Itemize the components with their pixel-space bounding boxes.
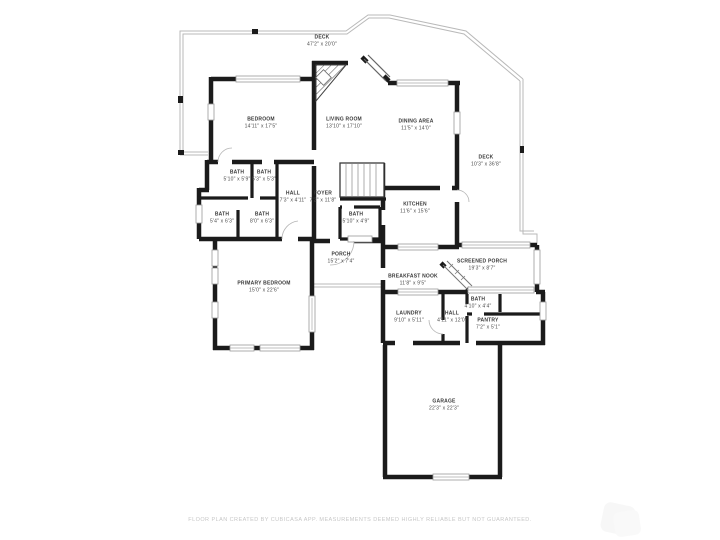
room-dims: 47'2" x 20'0": [307, 41, 337, 48]
room-name: SCREENED PORCH: [457, 259, 507, 266]
room-label-bedroom: BEDROOM 14'11" x 17'5": [245, 117, 278, 130]
room-label-bath-5: BATH 5'10" x 4'9": [342, 212, 369, 225]
window-midlines: [230, 79, 534, 477]
windows: [196, 76, 546, 480]
room-label-porch: PORCH 15'2" x 7'4": [327, 252, 354, 265]
room-label-pantry: PANTRY 7'2" x 5'1": [476, 318, 500, 331]
room-label-kitchen: KITCHEN 11'6" x 15'6": [400, 202, 430, 215]
room-label-garage: GARAGE 22'3" x 22'3": [429, 399, 459, 412]
room-label-foyer: FOYER 7'2" x 11'8": [310, 191, 337, 204]
room-dims: 15'0" x 22'6": [237, 287, 290, 294]
room-name: PORCH: [327, 252, 354, 259]
room-dims: 14'11" x 17'5": [245, 123, 278, 130]
room-label-bath-2: BATH 5'3" x 5'3": [252, 170, 276, 183]
room-dims: 8'0" x 6'3": [250, 218, 274, 225]
room-label-breakfast-nook: BREAKFAST NOOK 11'8" x 9'5": [388, 274, 438, 287]
footer-disclaimer: FLOOR PLAN CREATED BY CUBICASA APP. MEAS…: [0, 517, 720, 523]
room-name: BEDROOM: [245, 117, 278, 124]
room-dims: 10'3" x 36'8": [471, 161, 501, 168]
room-label-laundry: LAUNDRY 9'10" x 5'11": [394, 311, 424, 324]
room-name: BREAKFAST NOOK: [388, 274, 438, 281]
room-dims: 5'10" x 4'9": [342, 218, 369, 225]
room-label-deck-top: DECK 47'2" x 20'0": [307, 35, 337, 48]
room-label-hall-upper: HALL 7'3" x 4'11": [280, 191, 307, 204]
room-dims: 7'2" x 5'1": [476, 324, 500, 331]
room-dims: 5'10" x 5'9": [223, 176, 250, 183]
room-dims: 11'6" x 15'6": [400, 208, 430, 215]
room-dims: 7'3" x 4'11": [280, 197, 307, 204]
floor-plan-canvas: DECK 47'2" x 20'0" BEDROOM 14'11" x 17'5…: [0, 0, 720, 540]
room-label-hall-lower: HALL 4'11" x 12'0": [437, 311, 467, 324]
room-dims: 22'3" x 22'3": [429, 405, 459, 412]
room-dims: 7'2" x 11'8": [310, 197, 337, 204]
room-dims: 15'2" x 7'4": [327, 258, 354, 265]
room-label-bath-3: BATH 5'4" x 6'3": [210, 212, 234, 225]
deck-stairs-hatch: [316, 65, 346, 101]
room-dims: 5'3" x 5'3": [252, 176, 276, 183]
room-dims: 5'4" x 6'3": [210, 218, 234, 225]
room-label-dining-area: DINING AREA 11'5" x 14'0": [398, 119, 433, 132]
room-dims: 11'5" x 14'0": [398, 125, 433, 132]
room-label-primary-bedroom: PRIMARY BEDROOM 15'0" x 22'6": [237, 281, 290, 294]
room-label-bath-4: BATH 8'0" x 6'3": [250, 212, 274, 225]
staircase: [340, 163, 384, 197]
room-dims: 19'3" x 8'7": [457, 265, 507, 272]
room-label-bath-1: BATH 5'10" x 5'9": [223, 170, 250, 183]
room-dims: 4'10" x 4'4": [464, 303, 491, 310]
room-label-screened-porch: SCREENED PORCH 19'3" x 8'7": [457, 259, 507, 272]
room-dims: 13'10" x 17'10": [326, 123, 362, 130]
room-name: KITCHEN: [400, 202, 430, 209]
room-name: GARAGE: [429, 399, 459, 406]
room-name: DINING AREA: [398, 119, 433, 126]
room-label-living-room: LIVING ROOM 13'10" x 17'10": [326, 117, 362, 130]
room-name: LAUNDRY: [394, 311, 424, 318]
room-name: PRIMARY BEDROOM: [237, 281, 290, 288]
room-name: LIVING ROOM: [326, 117, 362, 124]
room-dims: 9'10" x 5'11": [394, 317, 424, 324]
room-label-bath-6: BATH 4'10" x 4'4": [464, 297, 491, 310]
room-label-deck-right: DECK 10'3" x 36'8": [471, 155, 501, 168]
room-dims: 4'11" x 12'0": [437, 317, 467, 324]
deck-rail-ticks: [178, 29, 524, 155]
room-name: PANTRY: [476, 318, 500, 325]
floor-plan-drawing: [0, 0, 720, 540]
room-dims: 11'8" x 9'5": [388, 280, 438, 287]
